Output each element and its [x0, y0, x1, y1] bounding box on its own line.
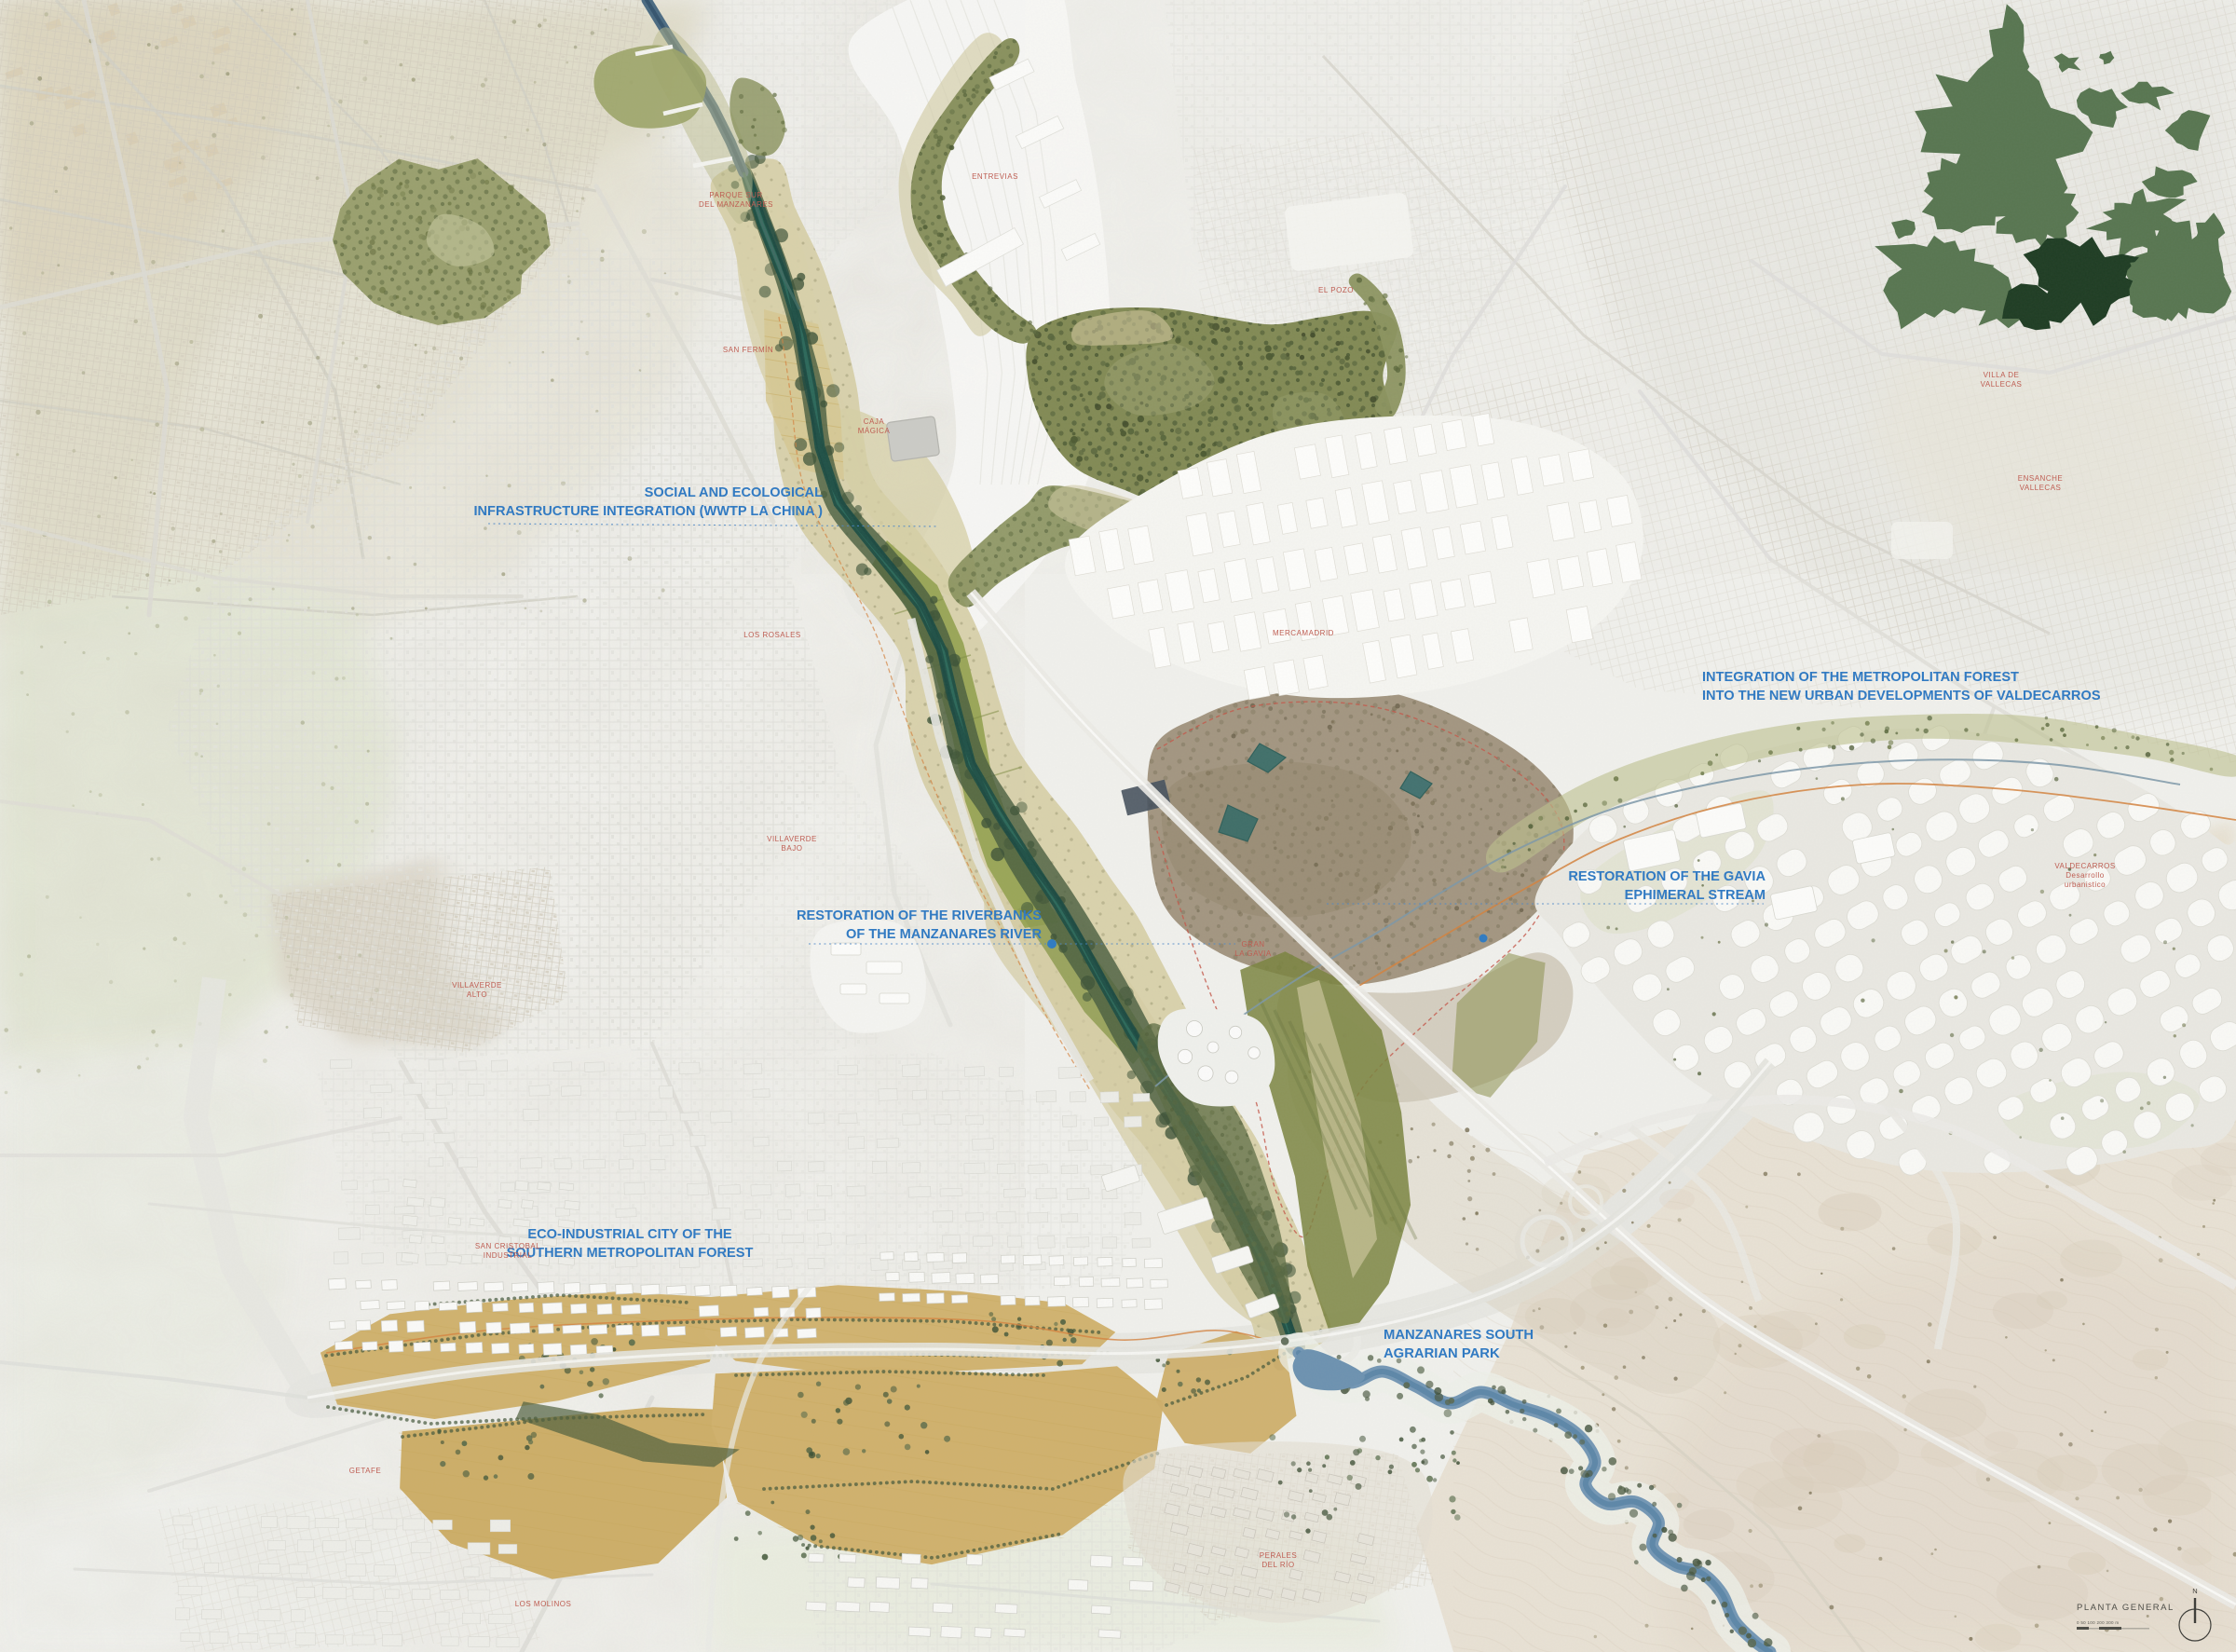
svg-text:ECO-INDUSTRIAL CITY OF THE: ECO-INDUSTRIAL CITY OF THE [527, 1227, 731, 1242]
svg-text:VALDECARROS: VALDECARROS [2054, 862, 2115, 870]
svg-text:RESTORATION OF THE RIVERBANKS: RESTORATION OF THE RIVERBANKS [797, 908, 1042, 923]
svg-text:MERCAMADRID: MERCAMADRID [1273, 629, 1334, 637]
svg-text:EL POZO: EL POZO [1318, 286, 1354, 294]
svg-text:AGRARIAN PARK: AGRARIAN PARK [1384, 1346, 1500, 1361]
svg-text:Desarrollo: Desarrollo [2066, 871, 2105, 880]
svg-text:INTEGRATION OF THE METROPOLITA: INTEGRATION OF THE METROPOLITAN FOREST [1702, 670, 2019, 685]
svg-text:LOS MOLINOS: LOS MOLINOS [515, 1600, 572, 1608]
svg-text:N: N [2192, 1587, 2197, 1595]
svg-text:GETAFE: GETAFE [349, 1467, 381, 1475]
svg-text:PARQUE SUR: PARQUE SUR [709, 191, 762, 199]
svg-text:EPHIMERAL STREAM: EPHIMERAL STREAM [1625, 888, 1766, 903]
svg-text:INFRASTRUCTURE INTEGRATION (WW: INFRASTRUCTURE INTEGRATION (WWTP LA CHIN… [473, 504, 823, 519]
svg-text:ENTREVIAS: ENTREVIAS [972, 172, 1018, 181]
svg-text:VILLAVERDE: VILLAVERDE [767, 835, 817, 843]
svg-text:ENSANCHE: ENSANCHE [2018, 474, 2063, 483]
svg-text:SAN FERMÍN: SAN FERMÍN [723, 346, 773, 354]
svg-text:ALTO: ALTO [467, 990, 487, 999]
svg-text:MANZANARES SOUTH: MANZANARES SOUTH [1384, 1328, 1534, 1343]
svg-text:LOS ROSALES: LOS ROSALES [743, 631, 801, 639]
svg-text:DEL MANZANARES: DEL MANZANARES [699, 200, 773, 209]
svg-text:VILLA DE: VILLA DE [1984, 371, 2020, 379]
svg-text:MÁGICA: MÁGICA [858, 427, 891, 435]
svg-text:PLANTA GENERAL: PLANTA GENERAL [2077, 1603, 2175, 1613]
svg-text:SAN CRISTOBAL: SAN CRISTOBAL [475, 1242, 540, 1250]
svg-text:BAJO: BAJO [782, 844, 803, 853]
svg-text:INDUSTRIAL: INDUSTRIAL [484, 1251, 533, 1260]
svg-text:DEL RÍO: DEL RÍO [1261, 1561, 1294, 1569]
svg-text:SOCIAL AND ECOLOGICAL: SOCIAL AND ECOLOGICAL [645, 485, 823, 500]
svg-text:VALLECAS: VALLECAS [2020, 484, 2062, 492]
svg-text:INTO THE NEW URBAN DEVELOPMENT: INTO THE NEW URBAN DEVELOPMENTS OF VALDE… [1702, 689, 2101, 703]
svg-text:SOUTHERN METROPOLITAN FOREST: SOUTHERN METROPOLITAN FOREST [507, 1246, 754, 1261]
svg-text:RESTORATION OF THE GAVIA: RESTORATION OF THE GAVIA [1568, 869, 1766, 884]
svg-text:0 50 100 200 300: 0 50 100 200 300 m [2077, 1620, 2119, 1625]
svg-text:VALLECAS: VALLECAS [1981, 380, 2023, 389]
svg-text:urbanistico: urbanistico [2065, 881, 2106, 889]
svg-text:CAJA: CAJA [864, 417, 885, 426]
svg-text:LA GAVIA: LA GAVIA [1234, 949, 1272, 958]
svg-text:VILLAVERDE: VILLAVERDE [452, 981, 502, 990]
svg-text:PERALES: PERALES [1260, 1551, 1297, 1560]
svg-text:GRAN: GRAN [1241, 940, 1264, 949]
svg-text:OF THE MANZANARES RIVER: OF THE MANZANARES RIVER [846, 927, 1042, 942]
